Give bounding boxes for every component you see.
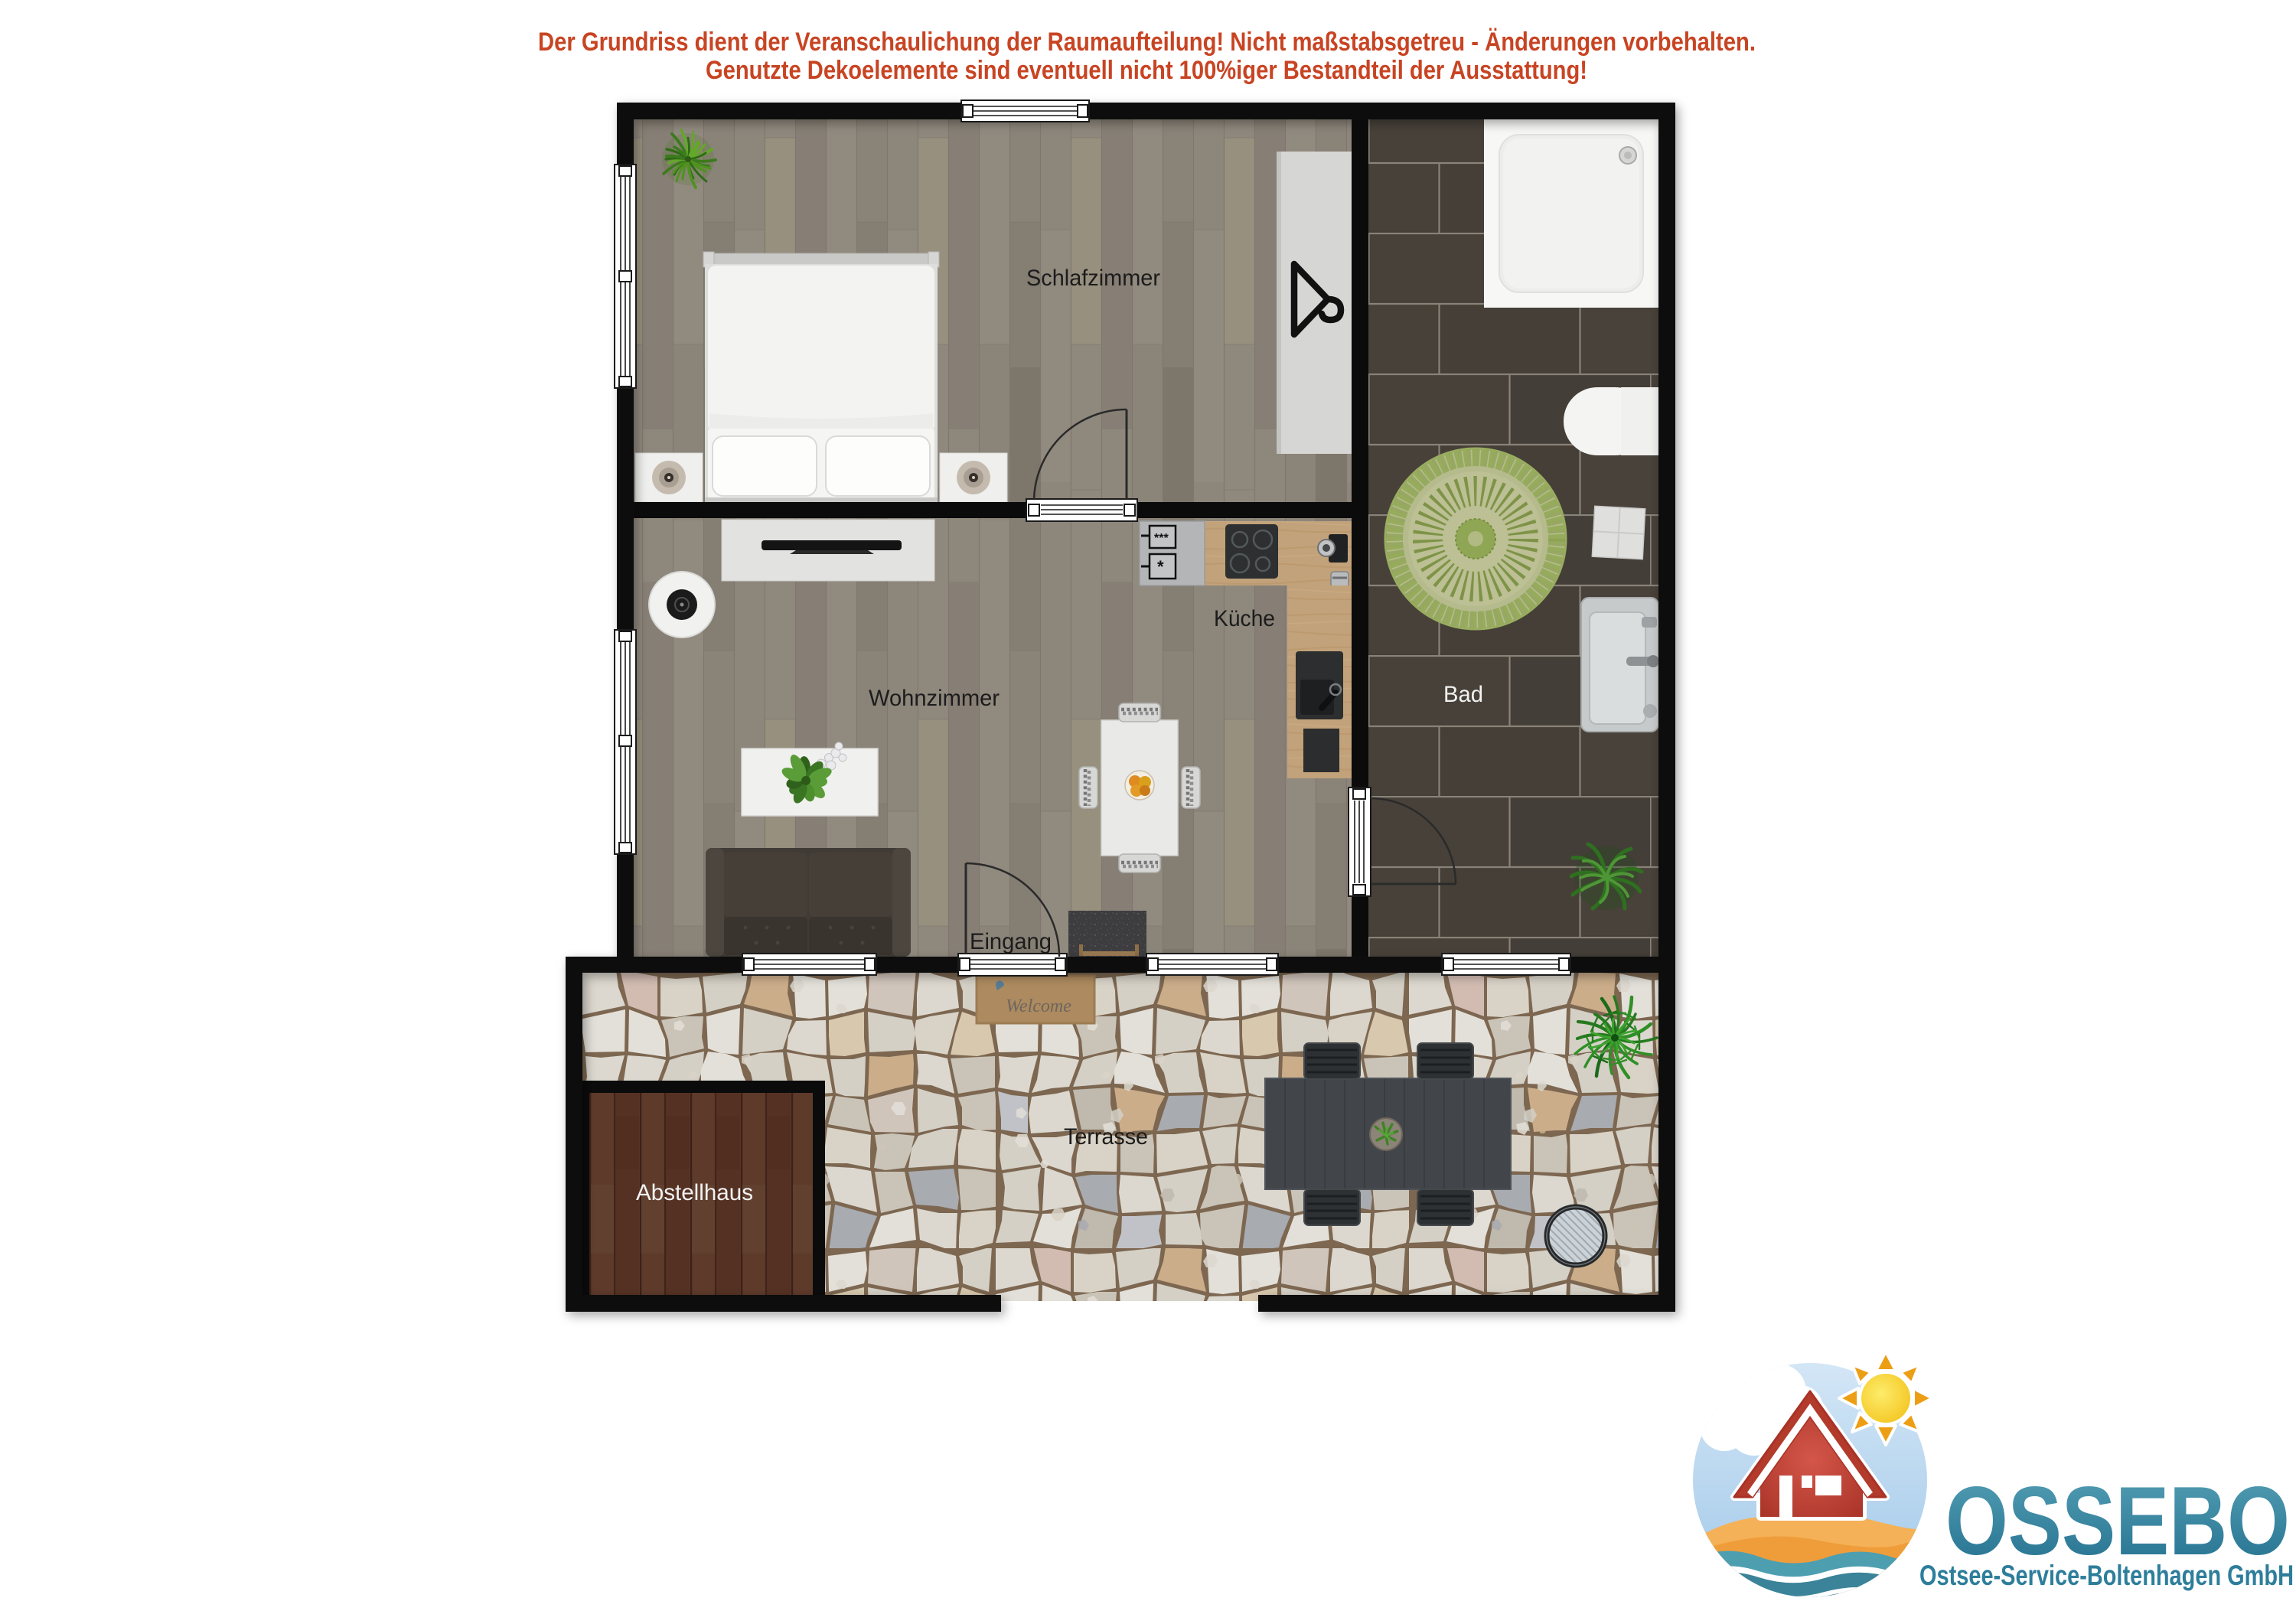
svg-text:Terrasse: Terrasse (1064, 1124, 1148, 1150)
svg-text:Genutzte Dekoelemente sind eve: Genutzte Dekoelemente sind eventuell nic… (706, 56, 1587, 85)
svg-text:Welcome: Welcome (1006, 996, 1071, 1016)
svg-text:OSSEBO: OSSEBO (1945, 1466, 2290, 1575)
svg-text:Schlafzimmer: Schlafzimmer (1026, 266, 1160, 291)
svg-text:Bad: Bad (1443, 682, 1483, 707)
svg-text:Küche: Küche (1214, 606, 1275, 631)
svg-text:Der Grundriss dient der Verans: Der Grundriss dient der Veranschaulichun… (538, 28, 1756, 57)
svg-text:*: * (1157, 557, 1164, 576)
svg-text:Eingang: Eingang (970, 929, 1052, 954)
svg-text:Wohnzimmer: Wohnzimmer (869, 686, 1000, 711)
svg-text:Ostsee-Service-Boltenhagen Gmb: Ostsee-Service-Boltenhagen GmbH (1919, 1560, 2294, 1591)
svg-text:***: *** (1154, 532, 1169, 545)
svg-text:Abstellhaus: Abstellhaus (636, 1180, 753, 1205)
